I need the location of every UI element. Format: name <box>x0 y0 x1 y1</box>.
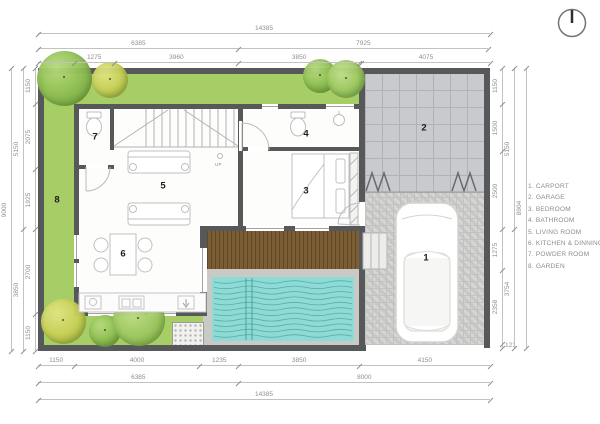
legend-item-bedroom: 3. BEDROOM <box>528 204 600 215</box>
dim-right-outer: 8904 <box>519 68 529 348</box>
dim-left-outer: 9000 <box>4 68 14 351</box>
legend: 1. CARPORT 2. GARAGE 3. BEDROOM 4. BATHR… <box>528 181 600 272</box>
dim-top-mid: 63857925 <box>38 39 488 49</box>
legend-item-garden: 8. GARDEN <box>528 261 600 272</box>
room-label-garden: 8 <box>54 195 59 206</box>
room-label-bathroom: 4 <box>303 129 308 140</box>
dim-bottom-inner: 11504000123538504150 <box>38 356 490 366</box>
sink-bathroom-icon <box>334 111 345 126</box>
garage-gate-icon <box>365 173 484 192</box>
room-label-garage: 2 <box>421 123 426 134</box>
dim-bottom-outer: 14385 <box>38 390 490 400</box>
door-arc-bedroom <box>242 123 269 150</box>
sofa-lower <box>128 203 190 225</box>
stairs-up-label: UP <box>215 162 222 167</box>
dim-top-outer: 14385 <box>38 24 490 34</box>
legend-item-kitchen: 6. KITCHEN & DINNING <box>528 238 600 249</box>
room-label-kitchen: 6 <box>120 249 125 260</box>
room-label-living: 5 <box>160 181 165 192</box>
room-label-carport: 1 <box>423 253 428 264</box>
kitchen-counter <box>79 293 206 312</box>
sofa-upper <box>128 151 190 173</box>
dim-left-inner: 11502075192527001150 <box>28 68 38 351</box>
entry-steps <box>363 233 387 269</box>
car <box>392 203 462 342</box>
dim-top-inner: 1275396038504075 <box>38 53 490 63</box>
room-label-bedroom: 3 <box>303 186 308 197</box>
legend-item-living: 5. LIVING ROOM <box>528 227 600 238</box>
floor-plan-canvas: 1 2 3 4 5 6 7 8 UP 1. CARPORT 2. GARAGE … <box>0 0 600 424</box>
legend-item-carport: 1. CARPORT <box>528 181 600 192</box>
door-arc-powder <box>86 167 110 191</box>
legend-item-bathroom: 4. BATHROOM <box>528 215 600 226</box>
bed <box>292 154 349 218</box>
legend-item-powder: 7. POWDER ROOM <box>528 249 600 260</box>
dim-left-mid: 51503850 <box>16 68 26 351</box>
room-label-powder: 7 <box>92 132 97 143</box>
dim-bottom-mid: 63858000 <box>38 373 490 383</box>
legend-item-garage: 2. GARAGE <box>528 192 600 203</box>
north-compass-icon <box>559 10 586 37</box>
dim-right-inner: 11501500250012752358121 <box>495 68 505 348</box>
pool-waves <box>214 278 352 340</box>
wardrobe <box>350 153 358 225</box>
